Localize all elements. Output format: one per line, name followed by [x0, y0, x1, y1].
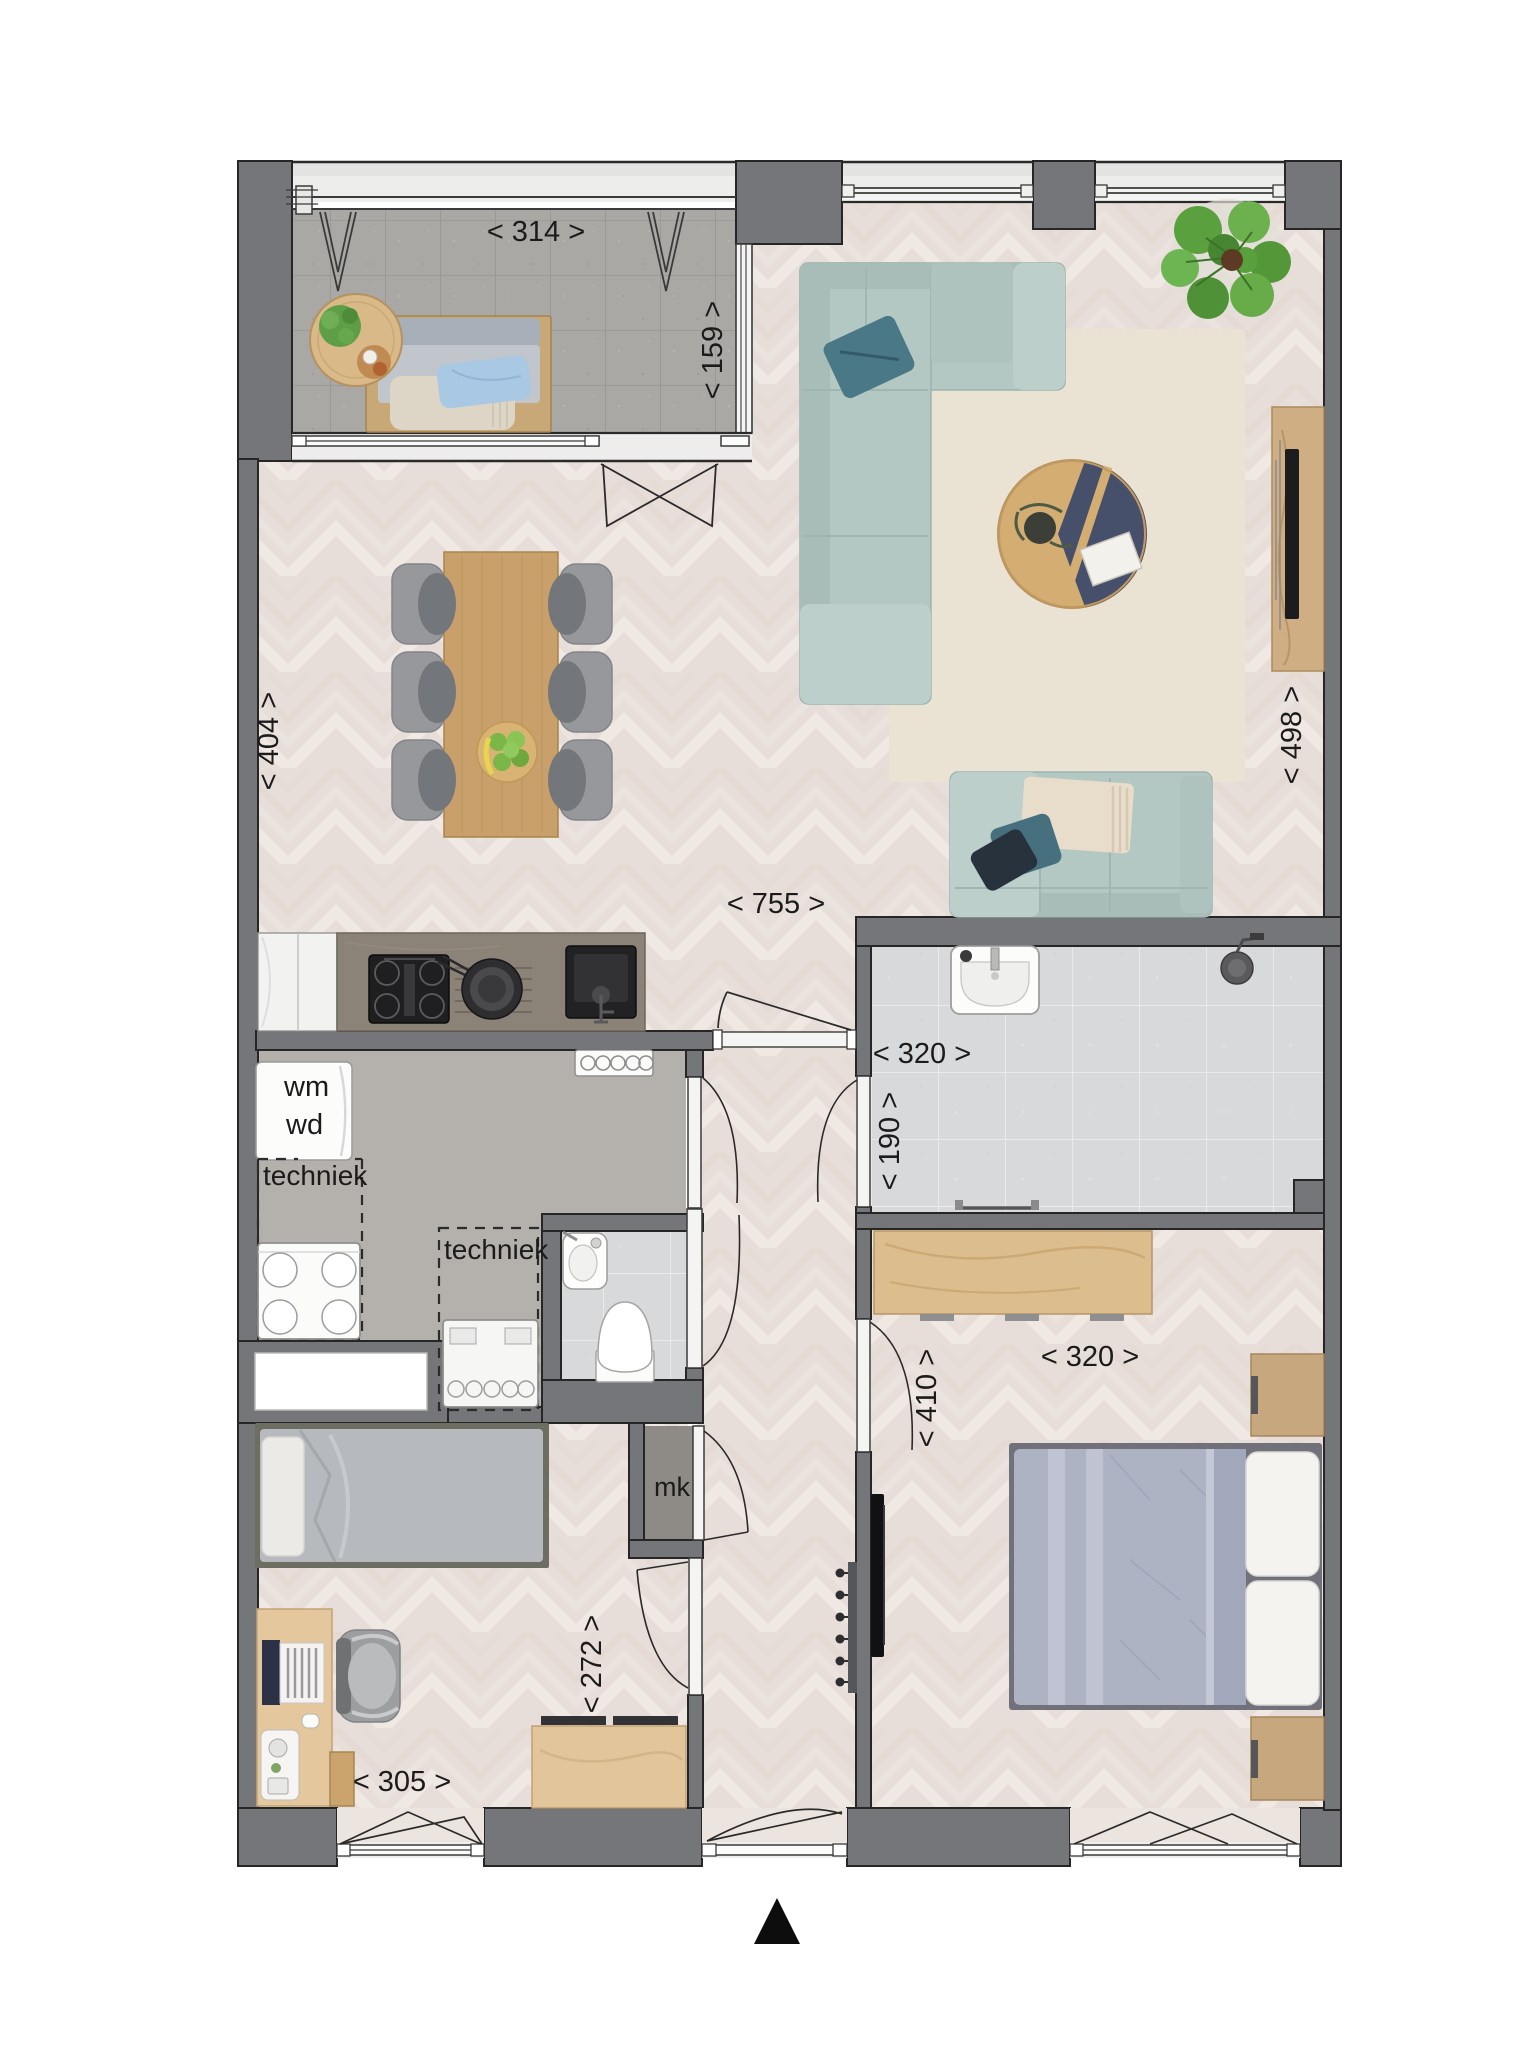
- svg-text:< 404 >: < 404 >: [253, 692, 285, 790]
- svg-text:< 320 >: < 320 >: [873, 1038, 971, 1070]
- svg-text:< 410 >: < 410 >: [911, 1349, 943, 1447]
- svg-text:< 314 >: < 314 >: [487, 216, 585, 248]
- svg-text:< 159 >: < 159 >: [697, 301, 729, 399]
- svg-text:< 190 >: < 190 >: [874, 1092, 906, 1190]
- svg-text:wd: wd: [285, 1109, 323, 1141]
- svg-text:techniek: techniek: [444, 1234, 549, 1265]
- svg-text:mk: mk: [654, 1472, 690, 1502]
- svg-text:< 305 >: < 305 >: [353, 1766, 451, 1798]
- svg-text:techniek: techniek: [263, 1160, 368, 1191]
- svg-text:wm: wm: [283, 1071, 329, 1103]
- svg-text:< 498 >: < 498 >: [1276, 686, 1308, 784]
- svg-text:< 320 >: < 320 >: [1041, 1341, 1139, 1373]
- svg-text:< 755 >: < 755 >: [727, 888, 825, 920]
- svg-text:< 272 >: < 272 >: [576, 1615, 608, 1713]
